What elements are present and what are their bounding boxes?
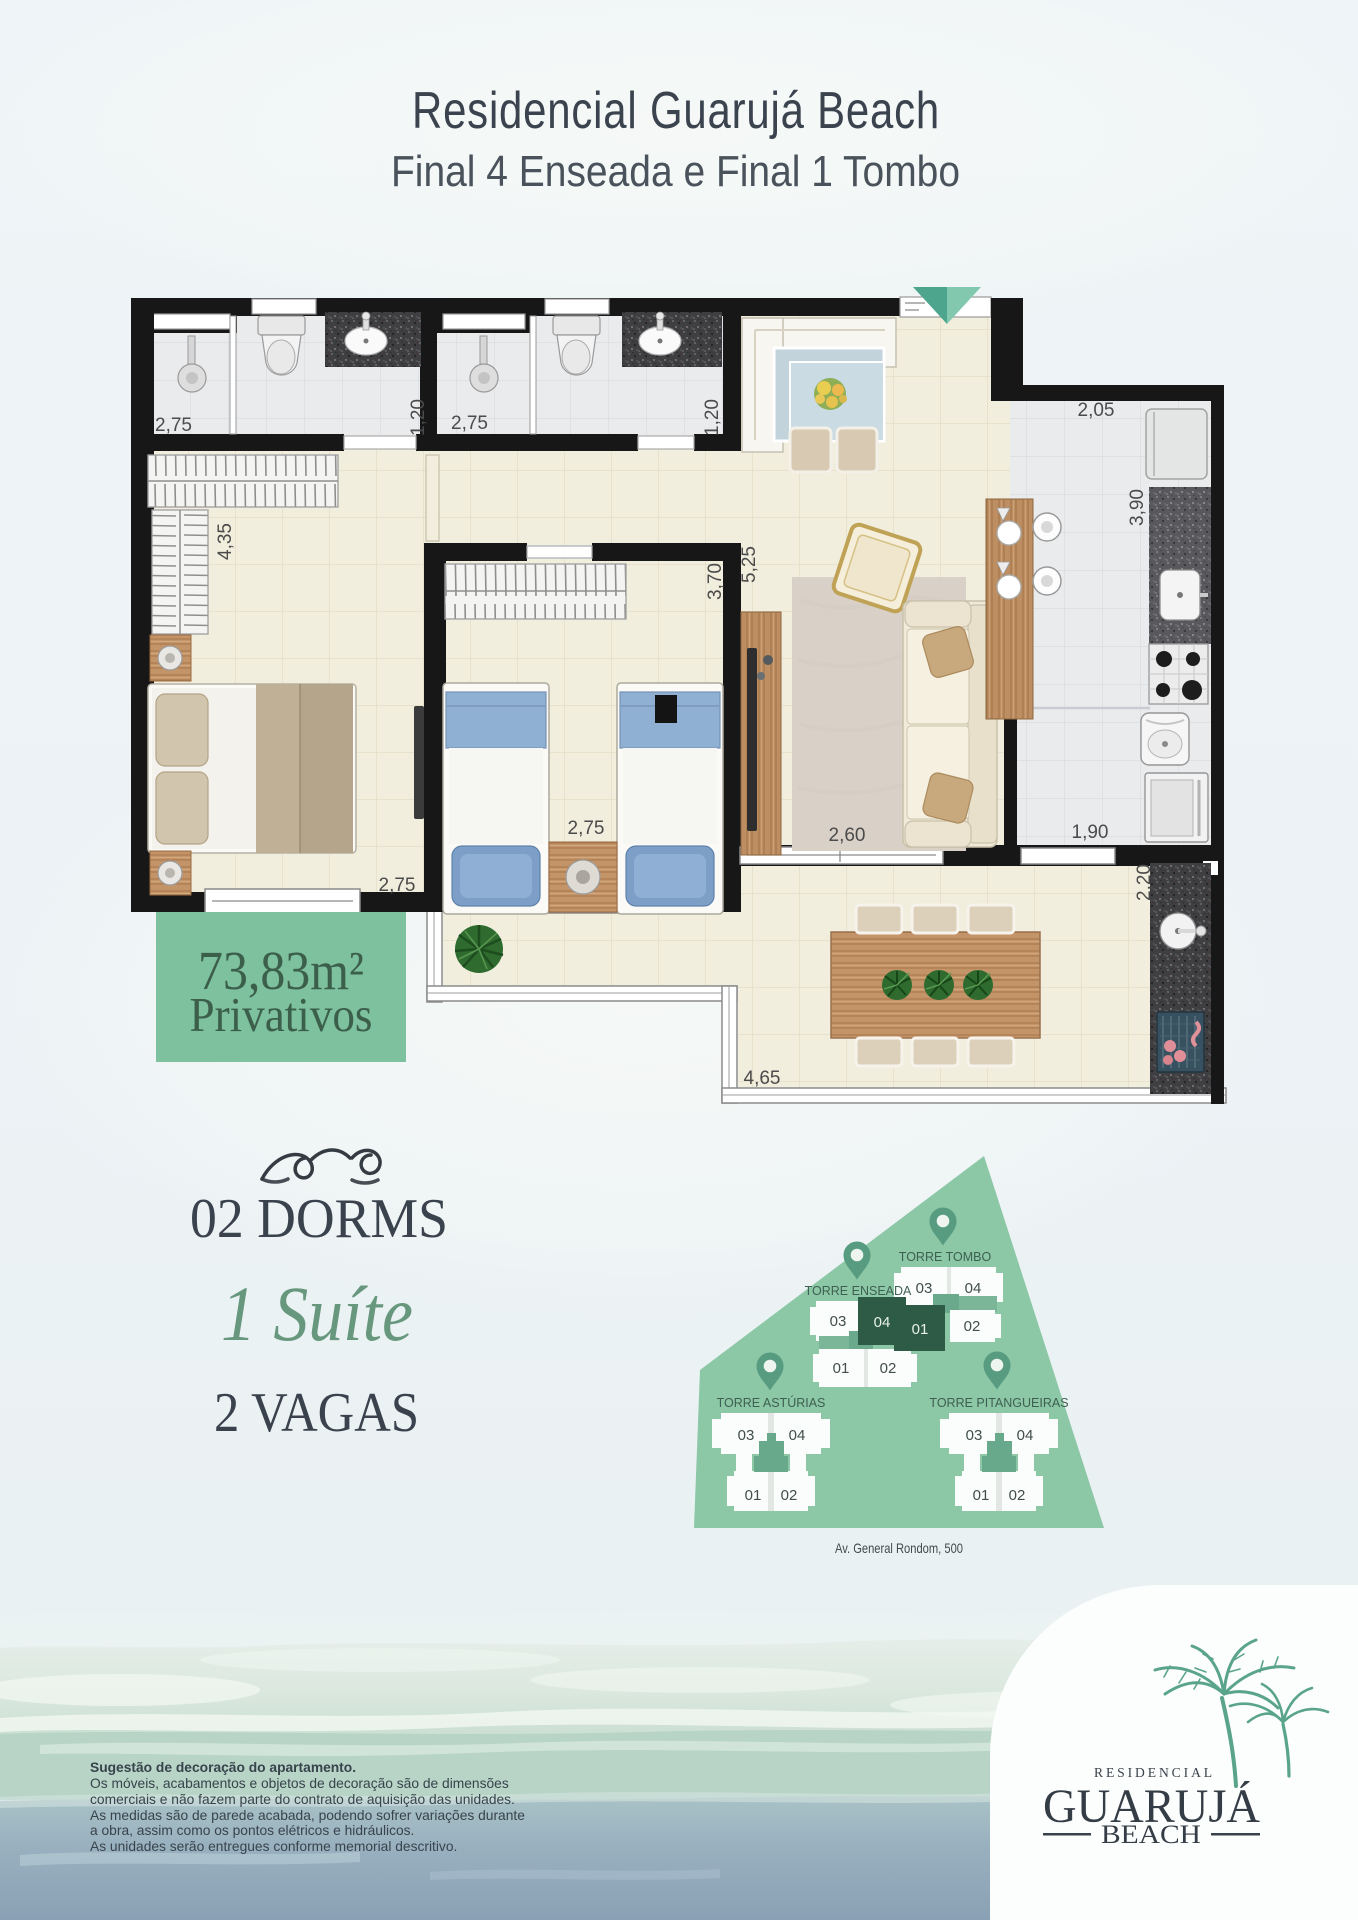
- svg-text:03: 03: [830, 1313, 847, 1330]
- svg-text:BEACH: BEACH: [1101, 1820, 1201, 1849]
- svg-text:2 VAGAS: 2 VAGAS: [214, 1382, 419, 1444]
- svg-text:a obra, assim como os pontos e: a obra, assim como os pontos elétricos e…: [90, 1823, 414, 1838]
- svg-text:03: 03: [738, 1427, 755, 1444]
- svg-text:2,75: 2,75: [568, 818, 605, 839]
- svg-text:02: 02: [880, 1360, 897, 1377]
- svg-text:4,65: 4,65: [744, 1068, 781, 1089]
- svg-text:04: 04: [789, 1427, 806, 1444]
- svg-text:Os móveis, acabamentos e objet: Os móveis, acabamentos e objetos de deco…: [90, 1776, 509, 1791]
- svg-text:02: 02: [964, 1318, 981, 1335]
- svg-text:04: 04: [965, 1280, 982, 1297]
- svg-text:2,20: 2,20: [1134, 864, 1155, 901]
- svg-text:01: 01: [912, 1321, 929, 1338]
- svg-text:5,25: 5,25: [739, 546, 760, 583]
- svg-text:3,70: 3,70: [705, 563, 726, 600]
- svg-text:04: 04: [1017, 1427, 1034, 1444]
- svg-text:1 Suíte: 1 Suíte: [221, 1270, 413, 1357]
- svg-text:RESIDENCIAL: RESIDENCIAL: [1094, 1766, 1215, 1781]
- svg-text:01: 01: [833, 1360, 850, 1377]
- svg-text:01: 01: [745, 1487, 762, 1504]
- svg-text:2,75: 2,75: [155, 415, 192, 436]
- svg-text:2,75: 2,75: [451, 413, 488, 434]
- svg-text:TORRE ASTÚRIAS: TORRE ASTÚRIAS: [717, 1395, 826, 1410]
- svg-text:Final 4 Enseada e Final 1 Tomb: Final 4 Enseada e Final 1 Tombo: [391, 147, 960, 196]
- svg-text:Privativos: Privativos: [190, 987, 373, 1042]
- svg-text:01: 01: [973, 1487, 990, 1504]
- svg-text:2,05: 2,05: [1078, 400, 1115, 421]
- svg-text:Sugestão de decoração do apart: Sugestão de decoração do apartamento.: [90, 1760, 356, 1775]
- svg-text:2,60: 2,60: [829, 825, 866, 846]
- svg-text:2,75: 2,75: [379, 875, 416, 896]
- svg-text:TORRE ENSEADA: TORRE ENSEADA: [805, 1284, 912, 1298]
- svg-text:1,20: 1,20: [408, 399, 429, 436]
- svg-text:1,20: 1,20: [702, 399, 723, 436]
- svg-text:As unidades serão entregues co: As unidades serão entregues conforme mem…: [90, 1839, 457, 1854]
- svg-text:TORRE PITANGUEIRAS: TORRE PITANGUEIRAS: [929, 1396, 1068, 1410]
- svg-text:comerciais e não fazem parte d: comerciais e não fazem parte do contrato…: [90, 1792, 515, 1807]
- svg-text:04: 04: [874, 1314, 891, 1331]
- svg-text:4,35: 4,35: [215, 523, 236, 560]
- svg-text:02: 02: [1009, 1487, 1026, 1504]
- svg-text:1,90: 1,90: [1072, 822, 1109, 843]
- svg-text:03: 03: [966, 1427, 983, 1444]
- svg-text:02 DORMS: 02 DORMS: [190, 1188, 448, 1250]
- svg-text:3,90: 3,90: [1127, 489, 1148, 526]
- svg-text:Residencial Guarujá Beach: Residencial Guarujá Beach: [412, 82, 940, 140]
- svg-text:Av. General Rondom, 500: Av. General Rondom, 500: [835, 1540, 963, 1556]
- svg-text:03: 03: [916, 1280, 933, 1297]
- svg-text:As medidas são de parede acaba: As medidas são de parede acabada, podend…: [90, 1808, 525, 1823]
- svg-text:02: 02: [781, 1487, 798, 1504]
- svg-text:TORRE TOMBO: TORRE TOMBO: [899, 1250, 992, 1264]
